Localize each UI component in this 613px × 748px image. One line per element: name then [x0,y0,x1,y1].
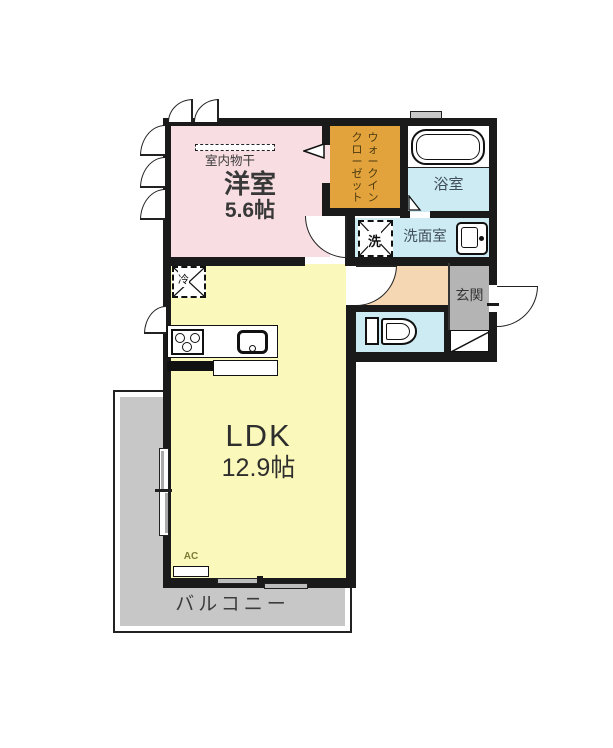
washing-machine-icon: 洗 [358,220,393,257]
wall [430,211,490,218]
floor-plan: 洗 冷 室内物干 洋室 5.6帖 ウォークイン クローゼット [0,0,613,748]
kitchen-counter-return [213,360,278,376]
ldk-size: 12.9帖 [171,455,346,481]
ac-unit-icon [173,566,209,577]
closet-door-wedge-icon [303,143,326,160]
wic-label-line1: ウォークイン [367,132,380,206]
bedroom-label: 洋室 [170,171,330,198]
wall [346,305,356,588]
casement-window-icon [194,99,219,122]
wall [322,208,408,216]
wall [400,211,410,218]
sliding-window-tick [155,489,172,492]
bathroom-folding-door-icon [408,195,422,212]
stove-icon [171,329,204,355]
kitchen-sink-icon [237,330,268,354]
front-door-threshold [487,303,499,306]
kitchen-lower-cabinet [167,361,213,371]
bathtub-icon [411,129,485,165]
ldk-label: LDK [171,420,346,453]
wall [489,118,497,285]
refrigerator-label: 冷 [178,271,189,287]
sliding-door-tick [257,576,263,587]
casement-window-icon [140,125,165,156]
sliding-door-panel [264,583,308,589]
balcony-label: バルコニー [120,595,345,615]
wic-label-line2: クローゼット [351,132,364,206]
washing-machine-label: 洗 [368,231,381,250]
bathroom-window-icon [410,111,442,119]
wall [346,215,355,265]
bathroom-label: 浴室 [408,177,489,193]
bedroom-size: 5.6帖 [170,200,330,222]
casement-window-icon [140,189,165,220]
front-door-arc [497,286,538,327]
casement-window-icon [168,99,193,122]
wall [163,257,305,266]
drying-rod-icon [195,144,275,151]
washbasin-icon [456,222,488,255]
bedroom-drying-note: 室内物干 [188,155,272,168]
entrance-step-area [450,330,489,352]
wic-label: ウォークイン クローゼット [330,132,400,206]
toilet-icon [365,317,420,346]
entrance-label: 玄関 [450,288,489,303]
wall [322,118,330,145]
sliding-window-icon [159,448,169,536]
refrigerator-icon: 冷 [172,266,206,298]
ac-label: AC [173,552,209,563]
wall [346,352,497,362]
washroom-label: 洗面室 [396,230,454,245]
sliding-door-panel [217,578,261,584]
wall [400,118,408,216]
step-diagonal-line [451,331,490,353]
casement-window-icon [140,157,165,188]
wall [346,305,450,312]
casement-window-icon [144,306,166,334]
